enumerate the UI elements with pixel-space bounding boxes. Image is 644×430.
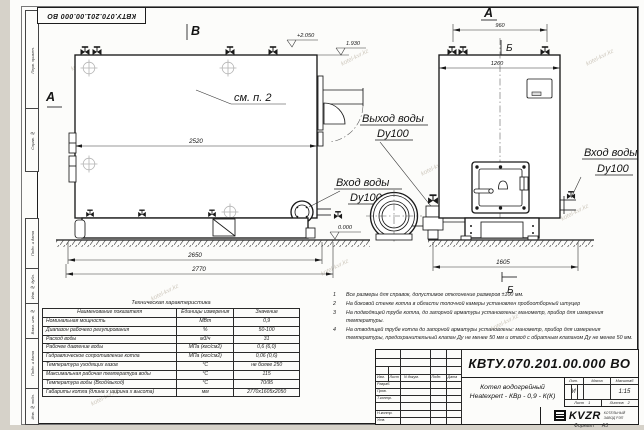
table-row: Номинальная мощностьМВт0,9 xyxy=(43,317,300,326)
param-name: Габариты котла (длина х ширина х высота) xyxy=(43,388,177,397)
table-row: Диапазон рабочего регулирования%50-100 xyxy=(43,326,300,335)
dim-2520: 2520 xyxy=(188,138,203,145)
scale-value: 1:15 xyxy=(611,385,638,399)
elevation-mid: 1.930 xyxy=(346,41,361,47)
note-text: На отводящей трубе котла до запорной арм… xyxy=(346,327,633,343)
param-value: 115 xyxy=(234,370,300,379)
inlet2-water-dn: Dy100 xyxy=(597,163,630,175)
table-row: Максимальная рабочая температура воды°С1… xyxy=(43,370,300,379)
note-item: 1Все размеры для справок, допустимое отк… xyxy=(333,292,633,300)
sheet-value: 1 xyxy=(588,401,590,405)
note-text: На боковой стенке котла в области топочн… xyxy=(346,301,633,309)
elevation-top: +2.050 xyxy=(297,33,315,39)
param-value: 50-100 xyxy=(234,326,300,335)
note-item: 2На боковой стенке котла в области топоч… xyxy=(333,301,633,309)
company-cell: KVZR КОТЕЛЬНЫЙ ЗАВОД РЭП xyxy=(541,407,638,424)
dim-1605: 1605 xyxy=(496,259,510,266)
note-text: На подводящей трубе котла, до запорной а… xyxy=(346,310,633,326)
format-label: Формат xyxy=(574,423,594,429)
lit-value: И xyxy=(564,385,584,399)
table-row: Температура уходящих газов°Сне более 250 xyxy=(43,362,300,371)
param-name: Температура уходящих газов xyxy=(43,362,177,371)
tb-col-ndokum: N докум. xyxy=(404,375,419,379)
note-text: Все размеры для справок, допустимое откл… xyxy=(346,292,633,300)
dim-1260: 1260 xyxy=(491,61,504,67)
tech-header-row: Наименование показателя Единицы измерени… xyxy=(43,309,300,318)
param-name: Максимальная рабочая температура воды xyxy=(43,370,177,379)
tech-col-unit: Единицы измерения xyxy=(177,309,234,318)
param-value: 70/95 xyxy=(234,379,300,388)
lit-mass-scale: Лит. Масса Масштаб И 1:15 xyxy=(564,377,638,399)
param-value: не более 250 xyxy=(234,362,300,371)
notes-list: 1Все размеры для справок, допустимое отк… xyxy=(333,292,633,344)
param-unit: мм xyxy=(177,388,234,397)
tb-col-izm: Изм. xyxy=(377,375,385,379)
param-value: 31 xyxy=(234,335,300,344)
param-name: Температура воды (Вход/выход) xyxy=(43,379,177,388)
param-unit: % xyxy=(177,326,234,335)
param-name: Гидравлическое сопротивление котла xyxy=(43,353,177,362)
view-label-v: В xyxy=(191,24,200,38)
note-item: 4На отводящей трубе котла до запорной ар… xyxy=(333,327,633,343)
table-row: Расход водым3/ч31 xyxy=(43,335,300,344)
tb-col-podp: Подп. xyxy=(432,375,442,379)
title-block: Изм. Лист N докум. Подп. Дата Разраб. Пр… xyxy=(375,349,639,425)
param-value: 2770х1605х2050 xyxy=(234,388,300,397)
mass-header: Масса xyxy=(584,377,611,385)
furnace-door xyxy=(472,162,529,213)
param-unit: °С xyxy=(177,379,234,388)
param-name: Диапазон рабочего регулирования xyxy=(43,326,177,335)
kvzr-logo-text: KVZR xyxy=(569,410,601,422)
company-name: КОТЕЛЬНЫЙ ЗАВОД РЭП xyxy=(604,411,625,420)
note-number: 4 xyxy=(333,327,346,343)
param-unit: МПа (кгс/см2) xyxy=(177,353,234,362)
tech-col-name: Наименование показателя xyxy=(43,309,177,318)
table-row: Габариты котла (длина х ширина х высота)… xyxy=(43,388,300,397)
param-value: 0,6 (6,0) xyxy=(234,344,300,353)
tech-col-value: Значение xyxy=(234,309,300,318)
company-name-line2: ЗАВОД РЭП xyxy=(604,416,625,420)
tb-row-nkontr: Н.контр. xyxy=(377,411,393,415)
param-unit: °С xyxy=(177,362,234,371)
elevation-zero: 0.000 xyxy=(338,225,353,231)
kvzr-logo-icon xyxy=(554,410,566,421)
table-row: Гидравлическое сопротивление котлаМПа (к… xyxy=(43,353,300,362)
param-value: 0,9 xyxy=(234,317,300,326)
scale-header: Масштаб xyxy=(611,377,638,385)
note-number: 3 xyxy=(333,310,346,326)
sheet-numbers: Лист1 Листов2 xyxy=(564,399,638,407)
tech-table-title: Техническая характеристика xyxy=(42,300,300,306)
table-row: Температура воды (Вход/выход)°С70/95 xyxy=(43,379,300,388)
param-unit: °С xyxy=(177,370,234,379)
outlet-water-dn: Dy100 xyxy=(377,128,410,140)
note-number: 1 xyxy=(333,292,346,300)
dim-2650: 2650 xyxy=(187,252,202,259)
param-name: Рабочее давление воды xyxy=(43,344,177,353)
tb-row-tkontr: Т.контр. xyxy=(377,396,392,400)
tb-col-data: Дата xyxy=(448,375,458,379)
drawing-sheet: kotel-kvr.kz kotel-kvr.kz kotel-kvr.kz k… xyxy=(0,0,644,430)
product-name-line1: Котел водогрейный xyxy=(480,383,545,392)
param-value: 0,06 (0,6) xyxy=(234,353,300,362)
section-label-b-top: Б xyxy=(506,43,513,54)
dim-960: 960 xyxy=(495,23,505,29)
param-unit: МВт xyxy=(177,317,234,326)
document-number: КВТУ.070.201.00.000 ВО xyxy=(461,350,638,378)
format-note: Формат А3 xyxy=(574,423,608,429)
tech-characteristics: Техническая характеристика Наименование … xyxy=(42,300,300,397)
note-item: 3На подводящей трубе котла, до запорной … xyxy=(333,310,633,326)
tb-row-razrab: Разраб. xyxy=(377,382,390,386)
lit-header: Лит. xyxy=(564,377,584,385)
mass-value xyxy=(584,385,611,399)
view-label-a-front: А xyxy=(483,6,493,20)
note-number: 2 xyxy=(333,301,346,309)
product-name-line2: Heatexpert - КВр - 0,9 - К(К) xyxy=(470,392,556,401)
sheets-label: Листов xyxy=(610,401,624,405)
param-name: Номинальная мощность xyxy=(43,317,177,326)
param-unit: МПа (кгс/см2) xyxy=(177,344,234,353)
dim-2770: 2770 xyxy=(191,266,206,273)
side-view: В А см. п. 2 2520 +2.050 xyxy=(45,24,370,278)
callout-see-p2: см. п. 2 xyxy=(234,92,271,104)
sheets-value: 2 xyxy=(628,401,630,405)
inlet-water-label: Вход воды xyxy=(336,177,389,189)
tb-empty-cell xyxy=(461,407,541,424)
format-value: А3 xyxy=(602,423,608,429)
tb-row-prov: Пров. xyxy=(377,389,387,393)
inlet2-water-label: Вход воды xyxy=(584,147,637,159)
param-unit: м3/ч xyxy=(177,335,234,344)
sheet-label: Лист xyxy=(574,401,584,405)
table-row: Рабочее давление водыМПа (кгс/см2)0,6 (6… xyxy=(43,344,300,353)
product-name: Котел водогрейный Heatexpert - КВр - 0,9… xyxy=(461,377,565,407)
tb-col-list: Лист xyxy=(390,375,400,379)
section-label-a-left: А xyxy=(45,90,55,104)
front-view: А 960 Б 1260 xyxy=(428,6,638,296)
param-name: Расход воды xyxy=(43,335,177,344)
door-knob xyxy=(499,181,508,189)
outlet-water-label: Выход воды xyxy=(362,113,424,125)
tb-row-utv: Утв. xyxy=(377,418,385,422)
